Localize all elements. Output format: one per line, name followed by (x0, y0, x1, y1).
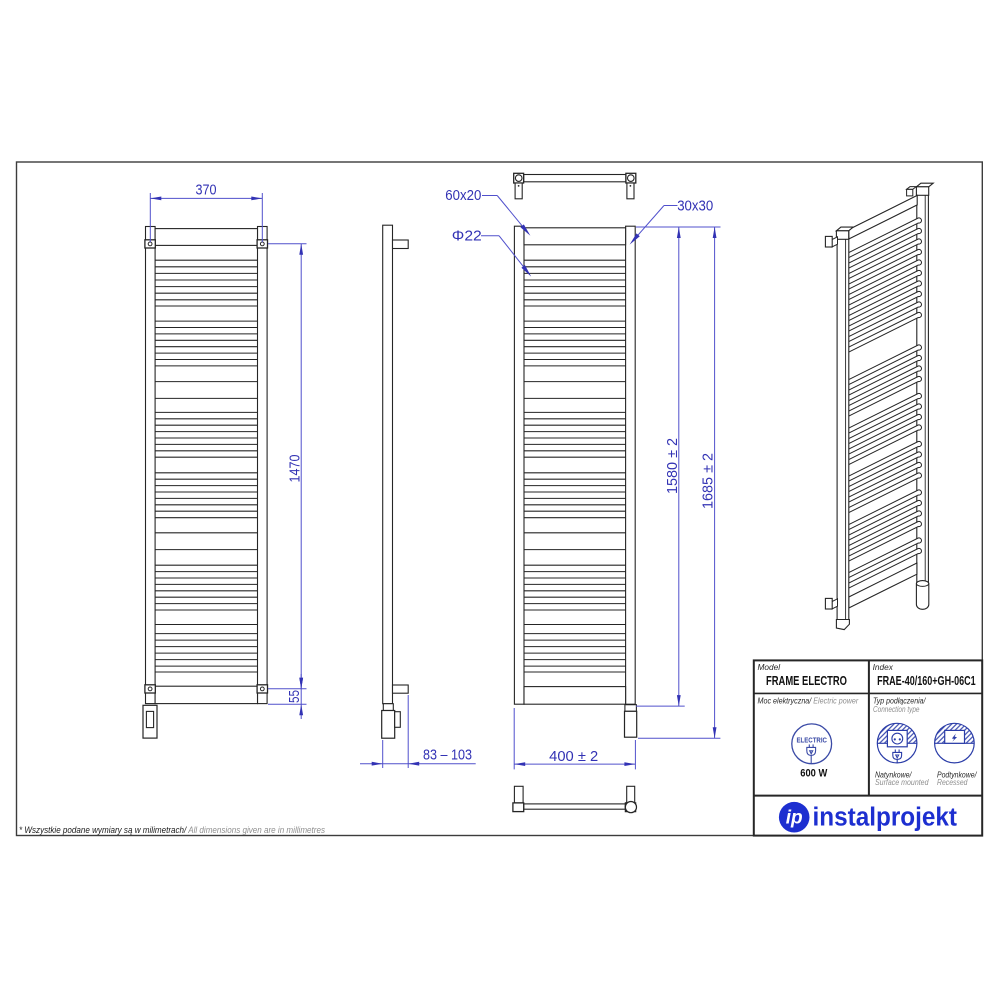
svg-text:55: 55 (287, 690, 303, 703)
svg-text:Moc elektryczna/ Electric powe: Moc elektryczna/ Electric power (758, 696, 860, 706)
svg-text:Connection type: Connection type (873, 704, 920, 714)
svg-text:1580 ± 2: 1580 ± 2 (665, 438, 681, 494)
svg-text:370: 370 (196, 183, 217, 199)
svg-text:Surface mounted: Surface mounted (875, 777, 929, 787)
svg-text:FRAME ELECTRO: FRAME ELECTRO (766, 674, 847, 688)
svg-text:Φ22: Φ22 (452, 229, 482, 245)
svg-text:600 W: 600 W (800, 767, 827, 779)
svg-text:instalprojekt: instalprojekt (813, 804, 958, 832)
svg-text:30x30: 30x30 (677, 198, 713, 214)
svg-text:1685 ± 2: 1685 ± 2 (701, 453, 717, 509)
svg-text:ip: ip (786, 808, 803, 829)
svg-text:1470: 1470 (287, 455, 303, 483)
svg-text:83 – 103: 83 – 103 (423, 748, 472, 764)
svg-text:60x20: 60x20 (445, 188, 481, 204)
svg-text:FRAE-40/160+GH-06C1: FRAE-40/160+GH-06C1 (877, 674, 976, 688)
svg-text:Index: Index (873, 662, 894, 672)
svg-text:ELECTRIC: ELECTRIC (796, 738, 827, 745)
svg-text:Model: Model (758, 662, 782, 672)
svg-text:* Wszystkie podane wymiary są: * Wszystkie podane wymiary są w milimetr… (19, 825, 326, 835)
svg-text:400 ± 2: 400 ± 2 (549, 749, 598, 765)
svg-text:Recessed: Recessed (937, 777, 968, 787)
